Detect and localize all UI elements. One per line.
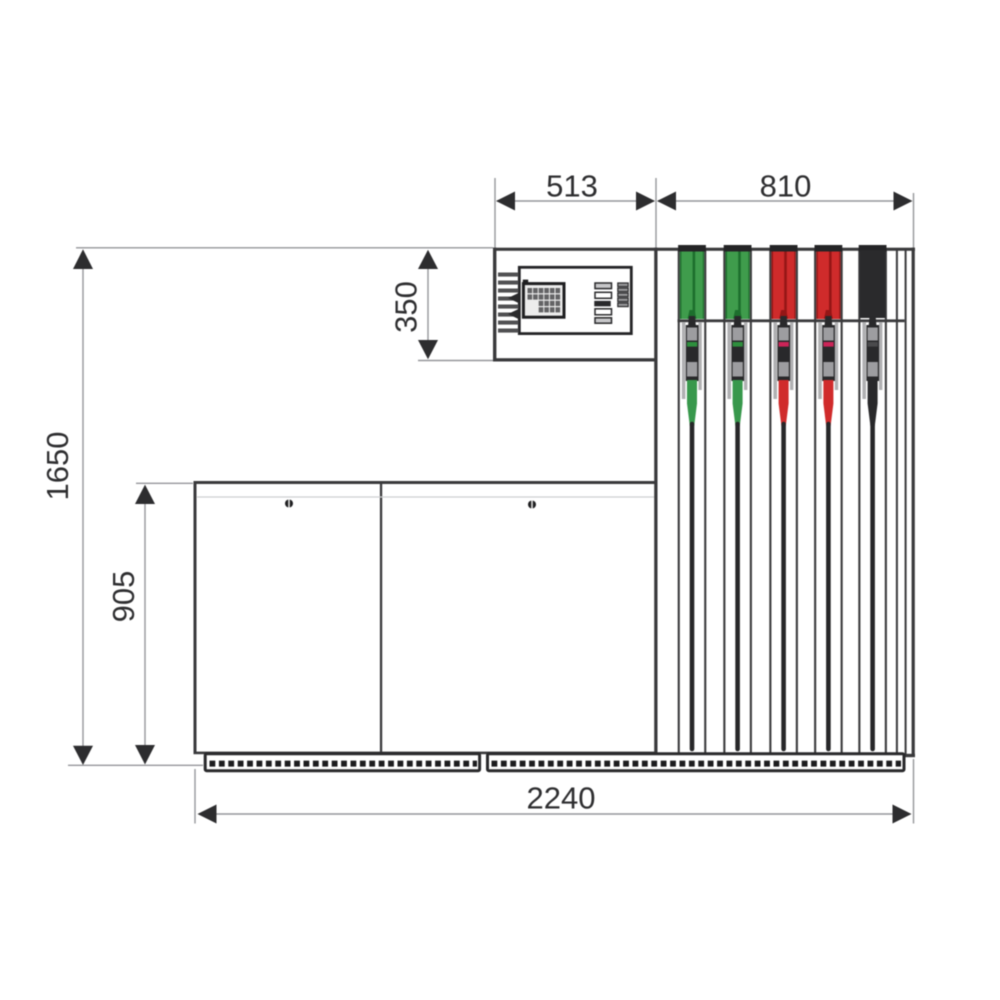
svg-text:513: 513 bbox=[546, 169, 598, 204]
svg-text:810: 810 bbox=[760, 169, 812, 204]
svg-text:350: 350 bbox=[389, 281, 424, 333]
svg-text:905: 905 bbox=[106, 571, 141, 623]
svg-text:2240: 2240 bbox=[527, 781, 596, 816]
svg-text:1650: 1650 bbox=[40, 432, 75, 501]
